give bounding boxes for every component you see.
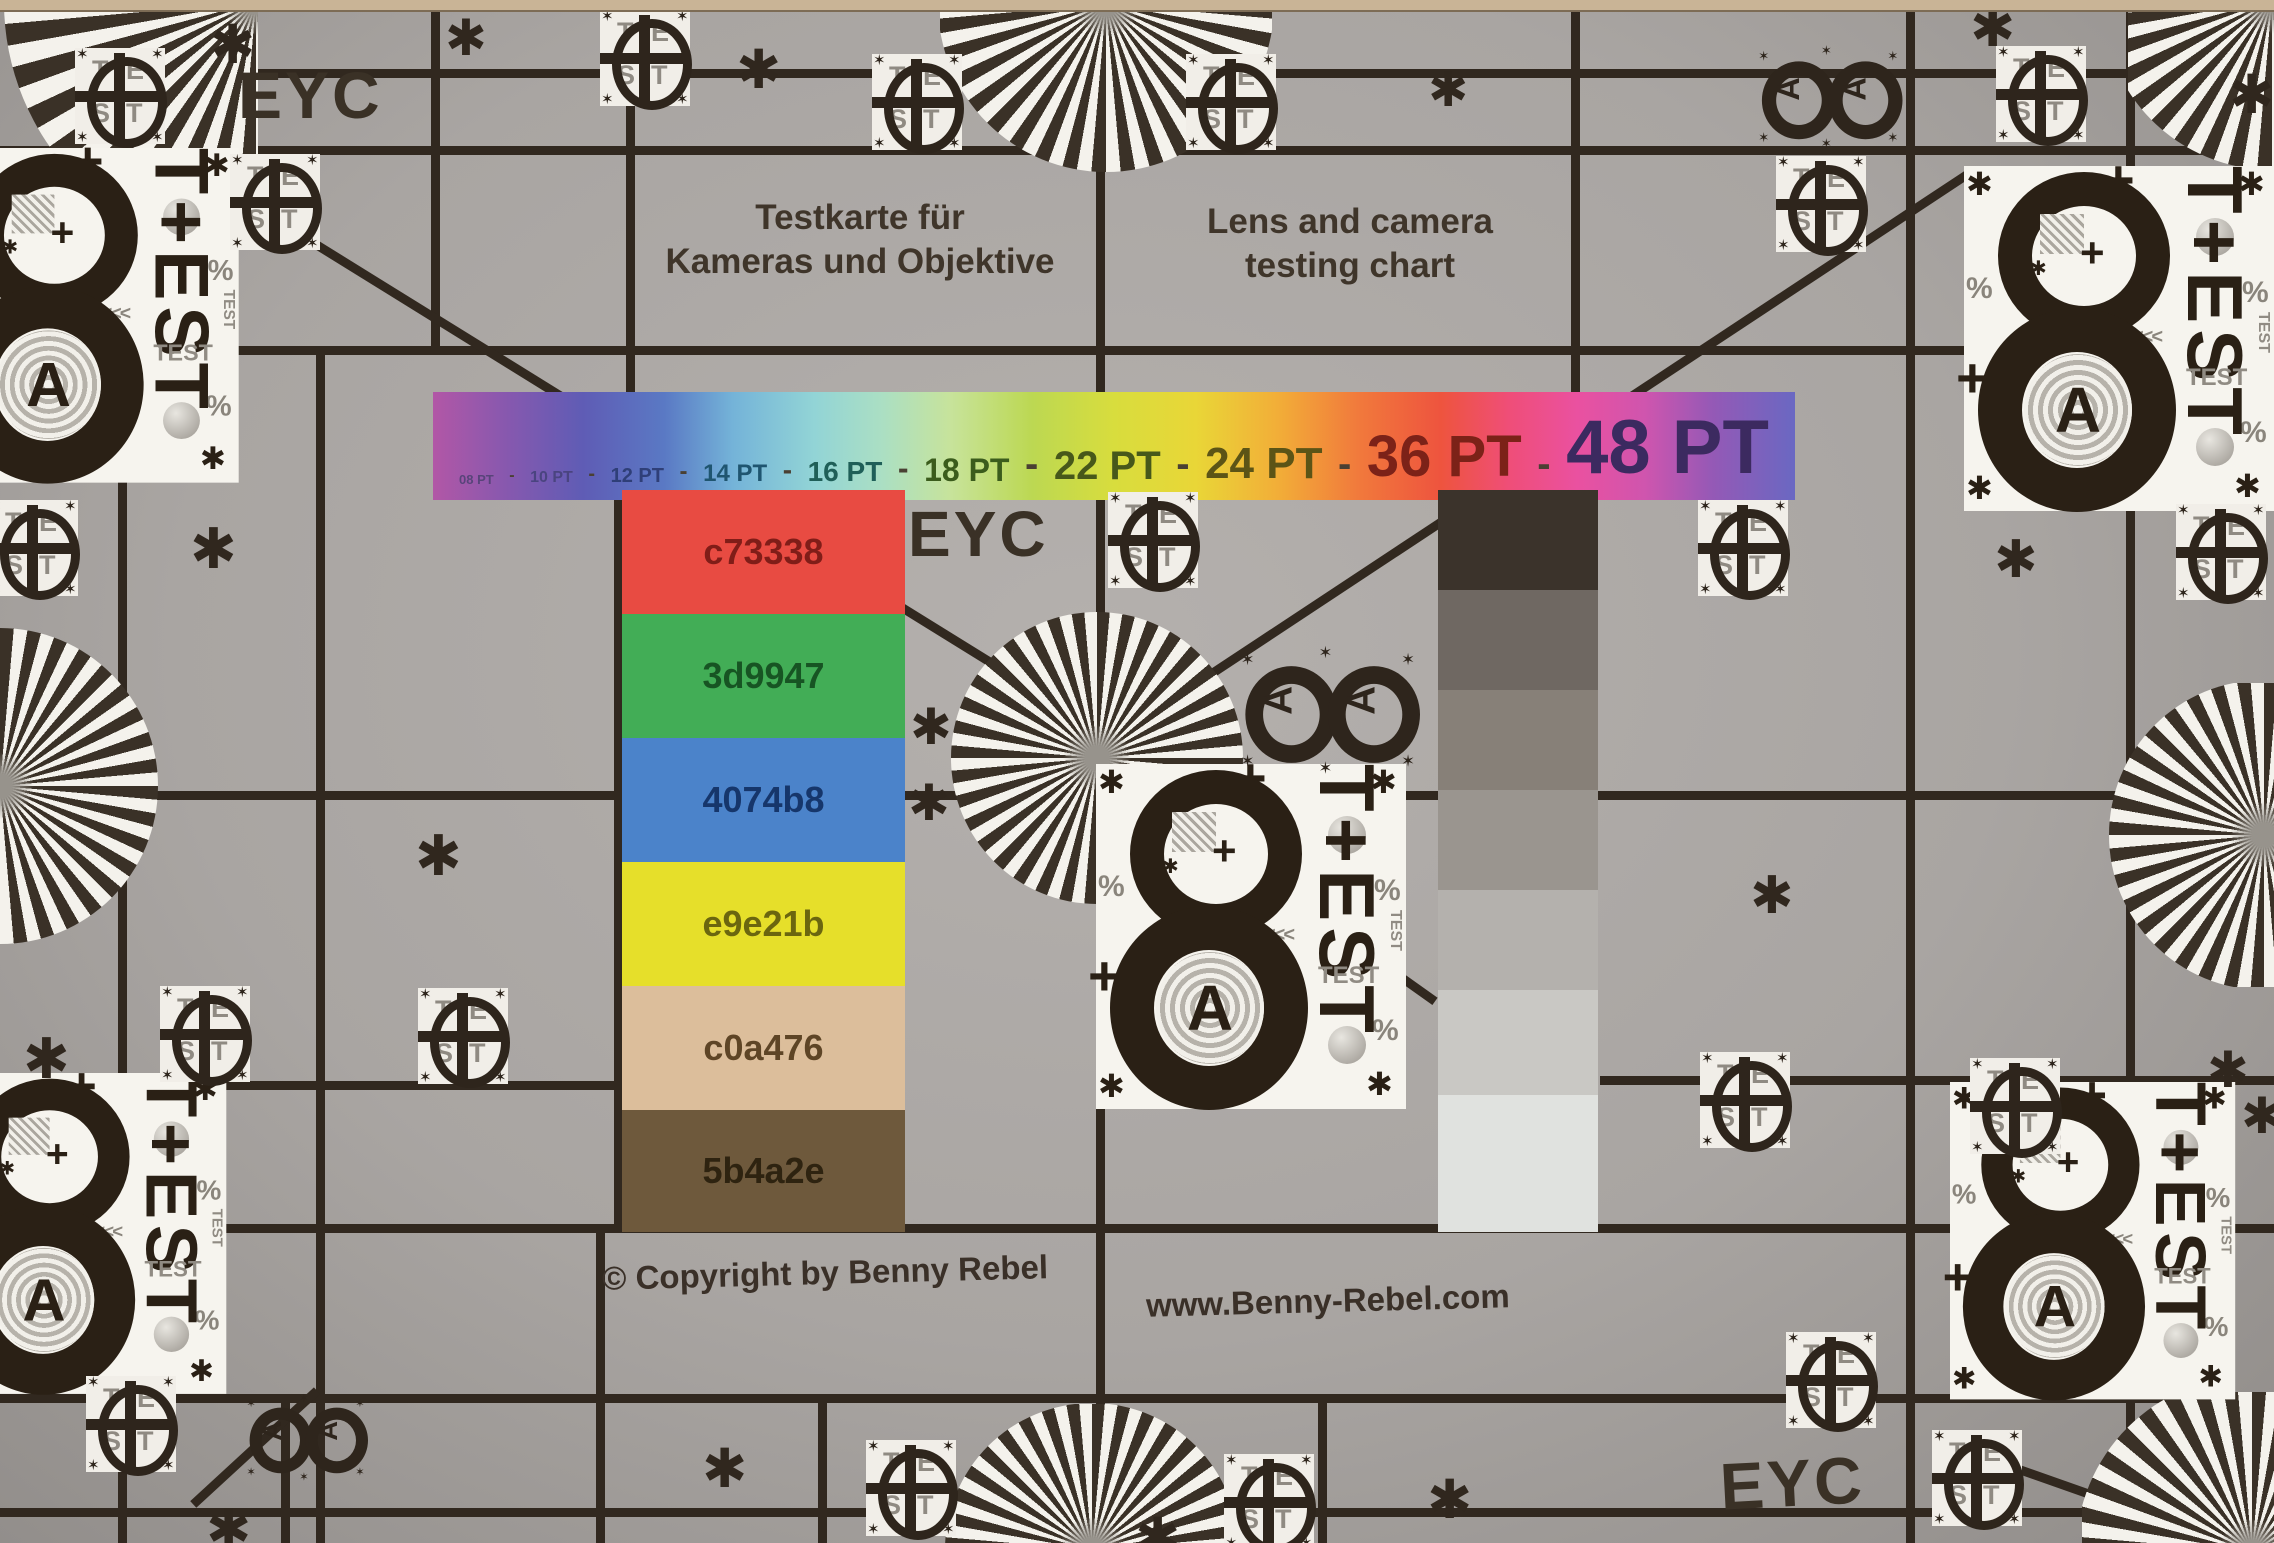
crosshair-target: ✶ ✶ ✶ ✶ T E S T [160,986,250,1082]
cross-vbar [905,1445,916,1531]
star-icon: ✶ [867,1439,880,1454]
concentric-circles-a: A [1156,952,1264,1064]
star-icon: ✶ [1241,753,1255,770]
star-icon: ✶ [1777,238,1790,253]
pt-size-label: 48 PT [1566,410,1769,500]
asterisk-icon: ✱ [1428,66,1468,114]
pt-size-label: 08 PT [459,473,494,500]
gray-step [1438,890,1598,990]
gray-step [1438,590,1598,690]
star-icon: ✶ [1225,1453,1238,1468]
asterisk-icon: ✱ [908,778,950,828]
test-8a-block: ✱ ✱ ✱ ✱ % % % + + + T+EST TEST TEST <<< … [0,1073,226,1394]
grid-vline [316,350,325,1543]
plus-mark: + [51,212,75,253]
letter-a: A [1773,77,1805,100]
siemens-star-fan [2082,1392,2274,1543]
star-icon: ✶ [419,987,432,1002]
concentric-circles-a: A [2005,1255,2104,1358]
star-icon: ✶ [601,92,614,107]
color-hex-label: 5b4a2e [702,1150,824,1192]
asterisk-icon: ✱ [23,1032,70,1088]
crosshair-target: ✶ ✶ ✶ ✶ T E S T [86,1376,176,1472]
pt-separator: - [1025,444,1038,500]
crosshair-target: ✶ ✶ ✶ ✶ T E S T [1786,1332,1876,1428]
small-test-text: TEST [153,340,213,367]
cross-vbar [2215,509,2226,595]
gray-step [1438,1095,1598,1232]
crosshair-target: ✶ ✶ ✶ ✶ T E S T [1700,1052,1790,1148]
concentric-circles-a: A [0,330,101,439]
star-icon: ✶ [1971,1140,1984,1155]
pt-size-label: 10 PT [530,470,573,500]
grid-vline [1318,1398,1327,1543]
star-icon: ✶ [151,47,164,62]
letter-a: A [315,1421,342,1441]
pt-separator: - [588,464,595,500]
plus-mark: + [1212,830,1237,872]
star-icon: ✶ [1319,645,1333,662]
star-icon: ✶ [942,1439,955,1454]
star-icon: ✶ [246,1467,255,1478]
gray-step [1438,690,1598,790]
circle-cross-icon [242,163,322,254]
asterisk-icon: ✱ [702,1442,747,1496]
double-8a-icon: ✶ ✶ ✶ ✶ ✶ ✶ A A [1243,652,1420,770]
circle-cross-icon [1788,165,1868,256]
star-icon: ✶ [1187,136,1200,151]
asterisk-icon: ✱ [445,13,487,63]
color-patch: 5b4a2e [622,1110,905,1232]
star-icon: ✶ [1852,155,1865,170]
star-icon: ✶ [1401,652,1415,669]
grid-vline [818,1398,827,1543]
color-patch-column: c733383d99474074b8e9e21bc0a4765b4a2e [622,490,905,1232]
crosshair-target: ✶ ✶ ✶ ✶ T E S T [1108,492,1198,588]
grayscale-step-wedge [1438,490,1598,1232]
crosshair-target: ✶ ✶ ✶ ✶ T E S T [1224,1454,1314,1543]
star-icon: ✶ [1225,1536,1238,1543]
color-hex-label: e9e21b [702,903,824,945]
cross-vbar [639,15,650,101]
color-hex-label: c0a476 [703,1027,823,1069]
star-icon: ✶ [1758,50,1769,63]
star-icon: ✶ [231,153,244,168]
gray-step [1438,790,1598,890]
title-english: Lens and camera testing chart [1120,200,1580,288]
circle-cross-icon [1120,501,1200,592]
circle-cross-icon [1710,509,1790,600]
test-8a-block: ✱ ✱ ✱ ✱ % % % + + + T+EST TEST TEST <<< … [1096,764,1406,1109]
star-icon: ✶ [1701,1134,1714,1149]
percent-mark: % [1966,274,1993,304]
star-icon: ✶ [2177,503,2190,518]
circle-cross-icon [87,57,167,148]
grid-hline [0,1224,2274,1233]
star-icon: ✶ [161,985,174,1000]
star-icon: ✶ [299,1393,308,1404]
photo-background-edge [0,0,2274,12]
percent-mark: % [1098,872,1125,902]
small-test-text-side: TEST [208,1209,225,1247]
letter-a: A [23,1266,66,1335]
cross-vbar [1225,59,1236,145]
star-icon: ✶ [161,1068,174,1083]
website-text: www.Benny-Rebel.com [1146,1279,1510,1322]
star-icon: ✶ [246,1398,255,1409]
eyc-label-middle: EYC [908,502,1049,566]
color-patch: c0a476 [622,986,905,1110]
star-icon: ✱ [1966,168,1993,200]
star-icon: ✶ [1933,1512,1946,1527]
crosshair-target: ✶ ✶ ✶ ✶ T E S T [0,500,78,596]
double-8a-icon: ✶ ✶ ✶ ✶ ✶ ✶ A A [1760,50,1903,145]
asterisk-icon: ✱ [910,702,952,752]
crosshair-target: ✶ ✶ ✶ ✶ T E S T [1186,54,1276,150]
test-8a-block: ✱ ✱ ✱ ✱ % % % + + + T+EST TEST TEST <<< … [1964,166,2274,511]
star-icon: ✶ [873,53,886,68]
star-icon: ✶ [2252,503,2265,518]
star-icon: ✶ [1109,491,1122,506]
star-icon: ✶ [2008,1429,2021,1444]
circle-cross-icon [878,1449,958,1540]
cross-vbar [199,991,210,1077]
star-icon: ✶ [1821,44,1832,57]
star-icon: ✶ [948,53,961,68]
star-icon: ✶ [1971,1057,1984,1072]
star-icon: ✱ [1966,472,1993,504]
asterisk-icon: ✱ [1994,534,2038,586]
cross-vbar [1737,505,1748,591]
plus-mark: + [2080,232,2105,274]
asterisk-icon: ✱ [736,43,781,97]
copyright-text: © Copyright by Benny Rebel [602,1250,1049,1295]
pt-size-label: 18 PT [924,454,1009,500]
star-icon: ✶ [1699,582,1712,597]
cross-vbar [125,1381,136,1467]
small-test-text-side: TEST [2254,312,2272,353]
eyc-label-top: EYC [238,62,383,128]
star-icon: ✶ [1774,499,1787,514]
resolution-pattern [1172,812,1216,852]
star-icon: ✶ [1776,1051,1789,1066]
pt-size-rainbow-bar: 08 PT-10 PT-12 PT-14 PT-16 PT-18 PT-22 P… [433,392,1795,500]
star-icon: ✶ [87,1458,100,1473]
cross-vbar [1739,1057,1750,1143]
small-test-text-side: TEST [1386,910,1404,951]
star-icon: ✶ [231,236,244,251]
crosshair-target: ✶ ✶ ✶ ✶ T E S T [2176,504,2266,600]
plus-mark: + [46,1134,69,1173]
circle-cross-icon [172,995,252,1086]
resolution-pattern [2040,214,2084,254]
asterisk-icon: ✱ [2241,1091,2274,1141]
circle-cross-icon [1712,1061,1792,1152]
color-hex-label: 3d9947 [702,655,824,697]
star-icon: ✱ [0,1157,15,1179]
siemens-star-disc [2109,683,2274,987]
cross-vbar [911,59,922,145]
star-icon: ✶ [1187,53,1200,68]
siemens-star-disc [945,1404,1239,1543]
color-hex-label: c73338 [703,531,823,573]
cross-vbar [1825,1337,1836,1423]
letter-a: A [1341,686,1381,715]
siemens-star-fan [2104,683,2274,987]
star-icon: ✱ [2030,256,2047,280]
color-patch: 4074b8 [622,738,905,862]
star-icon: ✱ [1952,1364,1977,1393]
percent-mark: % [1952,1181,1977,1209]
vertical-test-text: T+EST [1308,764,1386,1109]
test-8a-block: ✱ ✱ ✱ ✱ % % % + + + T+EST TEST TEST <<< … [0,148,239,483]
resolution-pattern [9,1118,50,1155]
star-icon: ✶ [873,136,886,151]
star-icon: ✶ [1300,1453,1313,1468]
star-icon: ✶ [299,1472,308,1483]
letter-a: A [1187,971,1233,1045]
color-patch: e9e21b [622,862,905,986]
circle-cross-icon [2188,513,2268,604]
circle-cross-icon [98,1385,178,1476]
star-icon: ✶ [1401,753,1415,770]
star-icon: ✶ [64,499,77,514]
star-icon: ✶ [1701,1051,1714,1066]
title-german: Testkarte für Kameras und Objektive [620,196,1100,284]
star-icon: ✶ [1109,574,1122,589]
circle-cross-icon [0,509,80,600]
circle-cross-icon [1798,1341,1878,1432]
asterisk-icon: ✱ [415,829,462,885]
circle-cross-icon [1944,1439,2024,1530]
cross-vbar [2035,51,2046,137]
crosshair-target: ✶ ✶ ✶ ✶ T E S T [1996,46,2086,142]
vertical-test-text: T+EST [135,1073,208,1394]
eyc-label-bottom: EYC [1718,1446,1866,1519]
crosshair-target: ✶ ✶ ✶ ✶ T E S T [1932,1430,2022,1526]
cross-vbar [1263,1459,1274,1543]
star-icon: ✶ [306,153,319,168]
star-icon: ✶ [2072,45,2085,60]
star-icon: ✶ [1862,1331,1875,1346]
star-icon: ✶ [1821,137,1832,150]
gray-step [1438,490,1598,590]
crosshair-target: ✶ ✶ ✶ ✶ T E S T [1970,1058,2060,1154]
star-icon: ✱ [2,235,18,258]
siemens-star-fan [940,1404,1244,1543]
star-icon: ✶ [1933,1429,1946,1444]
cross-vbar [1971,1435,1982,1521]
letter-a: A [26,349,71,421]
circle-cross-icon [2008,55,2088,146]
vertical-test-text: T+EST [2145,1082,2217,1399]
asterisk-icon: ✱ [1427,1473,1472,1527]
star-icon: ✶ [355,1398,364,1409]
plus-mark: + [2057,1143,2080,1182]
star-icon: ✶ [1887,50,1898,63]
cross-vbar [1815,161,1826,247]
star-icon: ✱ [2011,1165,2026,1187]
star-icon: ✶ [1997,128,2010,143]
star-icon: ✶ [162,1375,175,1390]
double-8a-icon: ✶ ✶ ✶ ✶ ✶ ✶ A A [248,1398,368,1478]
asterisk-icon: ✱ [1750,870,1794,922]
asterisk-icon: ✱ [1135,1511,1180,1543]
resolution-pattern [12,195,55,234]
grid-vline [1906,0,1915,1543]
star-icon: ✶ [867,1522,880,1537]
star-icon: ✶ [1787,1414,1800,1429]
pt-separator: - [1338,444,1351,500]
asterisk-icon: ✱ [206,1503,251,1543]
siemens-star-fan [0,626,162,944]
letter-a: A [1839,77,1871,100]
circle-cross-icon [430,997,510,1088]
small-test-text: TEST [144,1257,201,1283]
crosshair-target: ✶ ✶ ✶ ✶ T E S T [1698,500,1788,596]
circle-cross-icon [1982,1067,2062,1158]
concentric-circles-a: A [2024,354,2132,466]
cross-vbar [1147,497,1158,583]
star-icon: ✶ [87,1375,100,1390]
crosshair-target: ✶ ✶ ✶ ✶ T E S T [75,48,165,144]
cross-vbar [27,505,38,591]
circle-cross-icon [884,63,964,154]
small-test-text: TEST [1318,962,1379,990]
star-icon: ✶ [2046,1057,2059,1072]
color-hex-label: 4074b8 [702,779,824,821]
asterisk-icon: ✱ [190,522,237,578]
letter-a: A [2034,1272,2077,1340]
small-test-text: TEST [2154,1264,2210,1290]
siemens-star-disc [2082,1392,2274,1543]
crosshair-target: ✶ ✶ ✶ ✶ T E S T [1776,156,1866,252]
star-icon: ✶ [0,582,2,597]
star-icon: ✶ [1787,1331,1800,1346]
pt-separator: - [509,468,514,500]
cross-hbar [0,543,78,554]
small-test-text: TEST [2186,364,2247,392]
cross-vbar [269,159,280,245]
cross-vbar [457,993,468,1079]
star-icon: ✶ [1699,499,1712,514]
letter-a: A [1259,686,1299,715]
vertical-test-text: T+EST [2176,166,2254,511]
color-patch: 3d9947 [622,614,905,738]
grid-vline [431,0,440,353]
star-icon: ✱ [1098,1070,1125,1102]
crosshair-target: ✶ ✶ ✶ ✶ T E S T [872,54,962,150]
grid-hline [0,346,1970,355]
star-icon: ✶ [1887,132,1898,145]
star-icon: ✶ [236,985,249,1000]
crosshair-target: ✶ ✶ ✶ ✶ T E S T [230,154,320,250]
letter-a: A [2055,373,2101,447]
circle-cross-icon [612,19,692,110]
star-icon: ✶ [2177,586,2190,601]
star-icon: ✶ [1241,652,1255,669]
color-patch: c73338 [622,490,905,614]
star-icon: ✶ [1758,132,1769,145]
circle-cross-icon [1198,63,1278,154]
star-icon: ✶ [1319,761,1333,778]
star-icon: ✶ [494,987,507,1002]
small-test-text-side: TEST [2217,1216,2234,1254]
test-chart-photo: EYC EYC EYC Testkarte für Kameras und Ob… [0,0,2274,1543]
vertical-test-text: T+EST [144,148,220,483]
star-icon: ✶ [0,499,2,514]
letter-a: A [259,1421,286,1441]
star-icon: ✱ [1162,854,1179,878]
star-icon: ✶ [419,1070,432,1085]
star-icon: ✱ [1098,766,1125,798]
small-test-text-side: TEST [219,290,236,330]
star-icon: ✶ [1262,53,1275,68]
star-icon: ✶ [1184,491,1197,506]
star-icon: ✶ [355,1467,364,1478]
crosshair-target: ✶ ✶ ✶ ✶ T E S T [866,1440,956,1536]
star-icon: ✶ [76,47,89,62]
crosshair-target: ✶ ✶ ✶ ✶ T E S T [418,988,508,1084]
gray-step [1438,990,1598,1095]
asterisk-icon: ✱ [2229,68,2274,122]
cross-vbar [114,53,125,139]
star-icon: ✶ [76,130,89,145]
pt-size-label: 24 PT [1205,442,1322,500]
crosshair-target: ✶ ✶ ✶ ✶ T E S T [600,10,690,106]
star-icon: ✶ [1777,155,1790,170]
cross-vbar [2009,1063,2020,1149]
grid-vline [1571,0,1580,392]
siemens-star-disc [0,628,158,944]
